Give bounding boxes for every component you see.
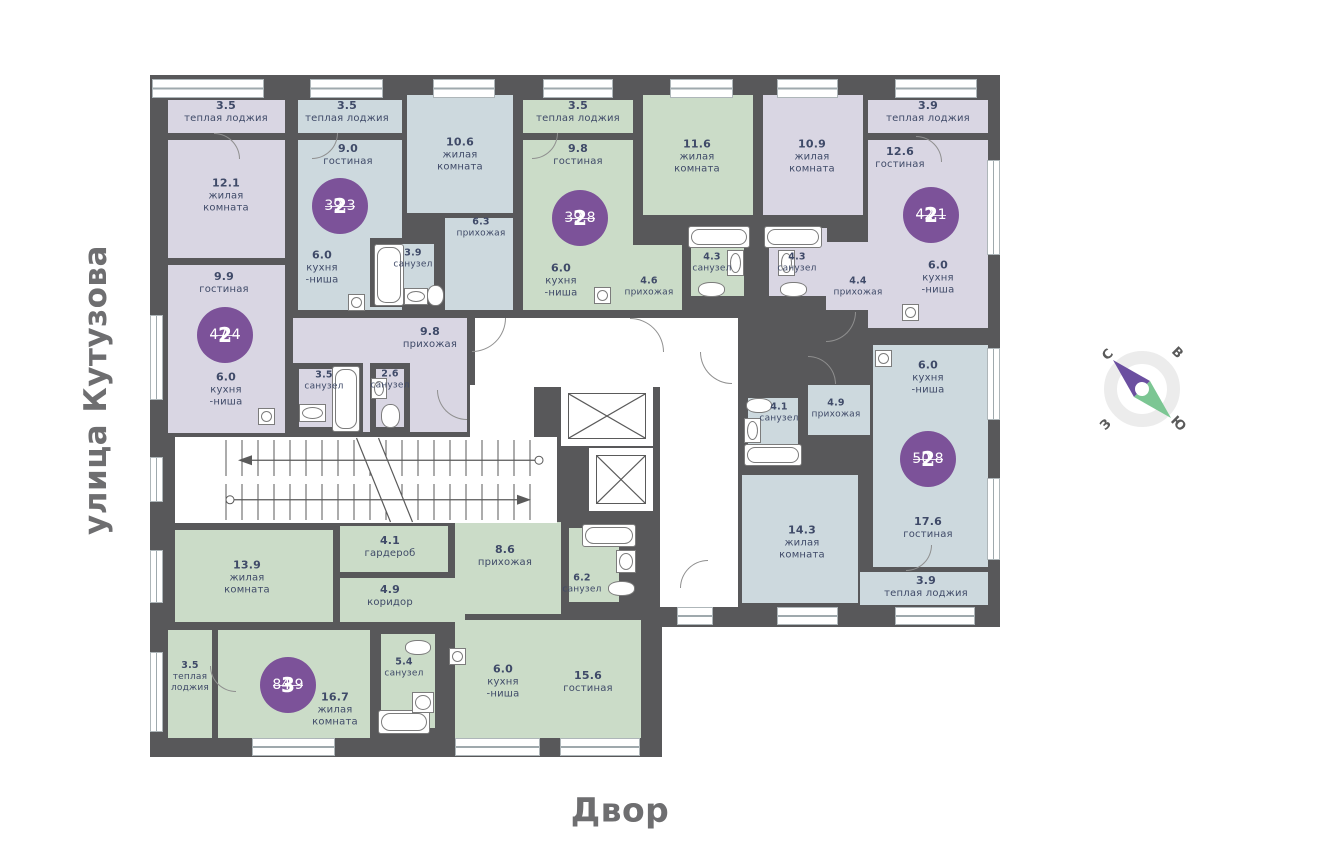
window (455, 738, 540, 756)
room-name: жилая комната (789, 151, 835, 176)
apartment-badge: 250.8 (900, 431, 956, 487)
room (475, 318, 738, 387)
room-label: 6.0кухня -ниша (487, 663, 520, 702)
window (987, 478, 1000, 560)
room-area-value: 13.9 (224, 559, 270, 573)
room-name: кухня -ниша (306, 262, 339, 287)
room-label: 6.0кухня -ниша (306, 249, 339, 288)
toilet-fixture (608, 581, 635, 596)
room-name: санузел (562, 584, 601, 595)
room-area-value: 3.9 (884, 574, 968, 588)
room-name: жилая комната (224, 572, 270, 597)
window (150, 315, 163, 400)
room-name: гостиная (903, 529, 952, 542)
room-name: санузел (370, 380, 409, 391)
elevator-shaft (568, 393, 646, 439)
room-area-value: 9.0 (323, 142, 372, 156)
room-area-value: 14.3 (779, 524, 825, 538)
room-area-value: 5.4 (384, 656, 423, 668)
window (152, 79, 264, 98)
room-name: теплая лоджия (305, 113, 389, 126)
room-label: 4.4прихожая (834, 275, 883, 298)
room-label: 6.2санузел (562, 572, 601, 595)
washer-fixture (449, 648, 466, 665)
room-label: 14.3жилая комната (779, 524, 825, 563)
room-area-value: 3.5 (171, 660, 209, 672)
sink-fixture (404, 288, 428, 305)
toilet-fixture (698, 282, 725, 297)
window (987, 348, 1000, 420)
room-label: 9.0гостиная (323, 142, 372, 168)
room-area-value: 3.9 (393, 247, 432, 259)
room-name: санузел (304, 381, 343, 392)
tub-fixture (744, 444, 802, 466)
room-name: санузел (393, 259, 432, 270)
room-name: прихожая (625, 287, 674, 298)
window (310, 79, 383, 98)
room-name: гостиная (553, 156, 602, 169)
room-area-value: 10.6 (437, 136, 483, 150)
room-area-value: 3.5 (305, 99, 389, 113)
window (252, 738, 335, 756)
room-label: 4.3санузел (777, 251, 816, 274)
room-label: 3.9теплая лоджия (886, 99, 970, 125)
apartment-total-area: 47.4 (209, 327, 240, 343)
toilet-fixture (780, 282, 807, 297)
window (777, 79, 838, 98)
room-area-value: 4.9 (367, 583, 413, 597)
room-name: жилая комната (203, 190, 249, 215)
window (150, 652, 163, 732)
room-label: 17.6гостиная (903, 515, 952, 541)
apartment-badge: 247.4 (197, 307, 253, 363)
apartment-total-area: 50.8 (912, 451, 943, 467)
room-label: 6.0кухня -ниша (922, 259, 955, 298)
room-label: 4.1гардероб (364, 534, 415, 560)
sink-fixture (299, 404, 326, 422)
room-area-value: 4.3 (777, 251, 816, 263)
room-label: 4.3санузел (692, 251, 731, 274)
room-label: 3.5теплая лоджия (305, 99, 389, 125)
room-name: жилая комната (674, 151, 720, 176)
washer-fixture (594, 287, 611, 304)
room-area-value: 15.6 (563, 669, 612, 683)
room-label: 9.8гостиная (553, 142, 602, 168)
room-area-value: 6.3 (457, 216, 506, 228)
room-area-value: 12.1 (203, 177, 249, 191)
room (455, 620, 641, 738)
room-area-value: 2.6 (370, 368, 409, 380)
room-name: теплая лоджия (886, 113, 970, 126)
room-label: 4.1санузел (759, 401, 798, 424)
room-name: прихожая (457, 228, 506, 239)
room-area-value: 4.3 (692, 251, 731, 263)
room-name: гостиная (199, 284, 248, 297)
room-area-value: 3.5 (184, 99, 268, 113)
room-area-value: 3.5 (536, 99, 620, 113)
floorplan-page: 3.5теплая лоджия12.1жилая комната9.9гост… (0, 0, 1320, 849)
room-name: теплая лоджия (536, 113, 620, 126)
room-area-value: 6.0 (922, 259, 955, 273)
room-area-value: 4.4 (834, 275, 883, 287)
room-name: прихожая (834, 287, 883, 298)
room-area-value: 9.9 (199, 270, 248, 284)
room-label: 6.0кухня -ниша (210, 371, 243, 410)
window (677, 607, 713, 625)
room-label: 3.9санузел (393, 247, 432, 270)
tub-fixture (582, 524, 636, 547)
room-name: санузел (692, 263, 731, 274)
room-name: кухня -ниша (210, 384, 243, 409)
room-area-value: 4.6 (625, 275, 674, 287)
room-label: 6.0кухня -ниша (545, 262, 578, 301)
window (543, 79, 613, 98)
room-area-value: 10.9 (789, 138, 835, 152)
room-label: 6.3прихожая (457, 216, 506, 239)
apartment-total-area: 39.3 (324, 198, 355, 214)
washer-fixture (875, 350, 892, 367)
room-label: 9.8прихожая (403, 325, 457, 351)
room-area-value: 6.0 (487, 663, 520, 677)
compass: С В З Ю (1087, 334, 1197, 444)
room-label: 3.9теплая лоджия (884, 574, 968, 600)
room-label: 8.6прихожая (478, 543, 532, 569)
room-area-value: 6.0 (306, 249, 339, 263)
room-label: 3.5теплая лоджия (184, 99, 268, 125)
toilet-fixture (381, 404, 400, 428)
room-name: теплая лоджия (184, 113, 268, 126)
room (470, 385, 534, 437)
room-label: 11.6жилая комната (674, 138, 720, 177)
window (433, 79, 495, 98)
apartment-total-area: 84.9 (272, 677, 303, 693)
room-name: гостиная (875, 159, 924, 172)
apartment-badge: 384.9 (260, 657, 316, 713)
street-label: улица Кутузова (78, 245, 114, 535)
room-label: 4.9коридор (367, 583, 413, 609)
elevator-shaft (596, 455, 646, 504)
room-label: 3.5санузел (304, 369, 343, 392)
room-area-value: 6.0 (210, 371, 243, 385)
room-name: кухня -ниша (922, 272, 955, 297)
apartment-badge: 239.3 (312, 178, 368, 234)
window (150, 550, 163, 603)
room-label: 10.6жилая комната (437, 136, 483, 175)
room-label: 5.4санузел (384, 656, 423, 679)
window (895, 607, 975, 625)
courtyard-label: Двор (571, 791, 670, 830)
room-label: 16.7жилая комната (312, 691, 358, 730)
room-label: 3.5теплая лоджия (536, 99, 620, 125)
room-name: кухня -ниша (912, 372, 945, 397)
room-area-value: 17.6 (903, 515, 952, 529)
room-area-value: 11.6 (674, 138, 720, 152)
window (670, 79, 733, 98)
room-name: санузел (759, 413, 798, 424)
room-name: кухня -ниша (545, 275, 578, 300)
room-name: гостиная (323, 156, 372, 169)
room-area-value: 9.8 (553, 142, 602, 156)
room-area-value: 8.6 (478, 543, 532, 557)
sink-fixture (412, 692, 434, 713)
room-area-value: 6.0 (545, 262, 578, 276)
room-name: теплая лоджия (171, 672, 209, 695)
window (987, 160, 1000, 255)
room-name: коридор (367, 597, 413, 610)
room-area-value: 16.7 (312, 691, 358, 705)
room-name: жилая комната (312, 704, 358, 729)
apartment-total-area: 42.1 (915, 207, 946, 223)
room-area-value: 4.9 (812, 397, 861, 409)
toilet-fixture (405, 640, 431, 655)
room-label: 12.1жилая комната (203, 177, 249, 216)
window (777, 607, 838, 625)
apartment-badge: 239.8 (552, 190, 608, 246)
washer-fixture (902, 304, 919, 321)
room-label: 10.9жилая комната (789, 138, 835, 177)
room-label: 9.9гостиная (199, 270, 248, 296)
window (150, 457, 163, 502)
tub-fixture (378, 710, 430, 734)
window (560, 738, 640, 756)
tub-fixture (688, 226, 750, 248)
room-label: 13.9жилая комната (224, 559, 270, 598)
room-name: санузел (777, 263, 816, 274)
room-area-value: 3.5 (304, 369, 343, 381)
room-name: гостиная (563, 683, 612, 696)
washer-fixture (258, 408, 275, 425)
room-name: жилая комната (437, 149, 483, 174)
room-name: санузел (384, 668, 423, 679)
room-name: гардероб (364, 548, 415, 561)
sink-fixture (616, 550, 636, 573)
room-label: 12.6гостиная (875, 145, 924, 171)
room-label: 2.6санузел (370, 368, 409, 391)
room-area-value: 6.2 (562, 572, 601, 584)
room-name: жилая комната (779, 537, 825, 562)
room-name: теплая лоджия (884, 588, 968, 601)
room-label: 4.9прихожая (812, 397, 861, 420)
room-area-value: 4.1 (364, 534, 415, 548)
room-name: кухня -ниша (487, 676, 520, 701)
room-area-value: 9.8 (403, 325, 457, 339)
room-label: 15.6гостиная (563, 669, 612, 695)
window (895, 79, 977, 98)
room-name: прихожая (478, 557, 532, 570)
room-name: прихожая (403, 339, 457, 352)
room-area-value: 3.9 (886, 99, 970, 113)
room-area-value: 4.1 (759, 401, 798, 413)
apartment-total-area: 39.8 (564, 210, 595, 226)
room-name: прихожая (812, 409, 861, 420)
room-area-value: 12.6 (875, 145, 924, 159)
tub-fixture (764, 226, 822, 248)
room-label: 6.0кухня -ниша (912, 359, 945, 398)
toilet-fixture (427, 285, 444, 306)
room-label: 3.5теплая лоджия (171, 660, 209, 694)
room-area-value: 6.0 (912, 359, 945, 373)
apartment-badge: 242.1 (903, 187, 959, 243)
staircase (212, 437, 557, 523)
room-label: 4.6прихожая (625, 275, 674, 298)
washer-fixture (348, 294, 365, 311)
